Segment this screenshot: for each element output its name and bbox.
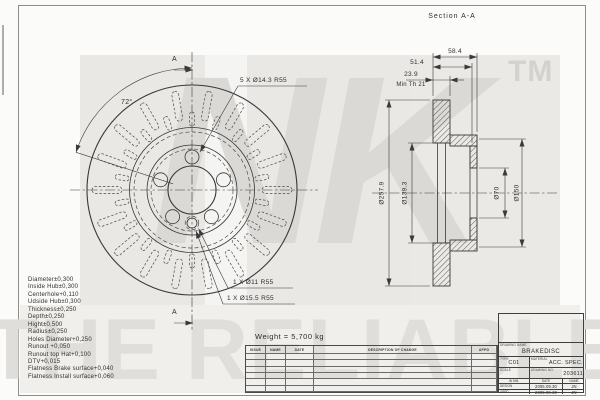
title-block-name-row: DRAWING NAME BRAKEDISC [499,342,583,356]
hole-2-label: 1 X Ø15.5 R55 [227,295,274,302]
drawing-no-value: 203611 [563,371,583,377]
drawing-name-label: DRAWING NAME [500,343,527,347]
type-value: C01 [499,360,529,366]
section-marker-a-top: A [172,56,177,63]
type-cell: TYPE C01 [499,357,530,367]
tolerance-line: Depth±0,250 [28,314,114,321]
tolerance-line: Thickness±0,250 [28,307,114,314]
revision-table: ISSUE NAME DATE DESCRIPTION OF CHANGE AP… [245,345,498,393]
dim-vent-diameter-label: Ø139.3 [402,181,409,204]
scale-cell: SCALE [499,368,530,378]
dim-hub-diameter-label: Ø150 [514,184,521,201]
title-block: DRAWING NAME BRAKEDISC TYPE C01 MATERIAL… [498,313,584,393]
dim-min-thickness-label: Min Th 21 [396,82,425,88]
dim-inner-width-label: 51.4 [410,59,424,66]
revision-header-name: NAME [266,346,286,354]
tolerance-line: Udside Hub±0,300 [28,299,114,306]
tolerance-line: Centerhole+0,110 [28,292,114,299]
tolerance-line: Runout top Hat+0,100 [28,352,114,359]
drawing-name-value: BRAKEDISC [499,349,583,355]
technical-drawing-sheet: NK TM THE RELIABLE PART [0,0,600,400]
revision-header-issue: ISSUE [246,346,266,354]
tolerance-line: Radius±0,250 [28,329,114,336]
tolerance-line: Diameter±0,300 [28,277,114,284]
bolt-pattern-label: 5 X Ø14.3 R55 [240,77,287,84]
hole-1-label: 1 X Ø11 R55 [233,279,273,286]
title-block-appd-row: APPD. 2005.09.30 JN [499,389,583,395]
title-block-scale-number-row: SCALE DRAWING NO. 203611 [499,367,583,378]
scale-label: SCALE [500,368,511,372]
revision-empty-cell [266,386,286,392]
revision-header-appd: APPD [472,346,497,354]
tolerance-line: Runout +0,050 [28,344,114,351]
tolerance-line: Holes Diameter+0,250 [28,337,114,344]
tolerance-list: Diameter±0,300 Inside Hub±0,300 Centerho… [28,277,114,381]
appd-label-cell: APPD. [499,390,530,395]
dim-thickness-label: 23.9 [404,71,418,78]
revision-header-description: DESCRIPTION OF CHANGE [314,346,472,354]
revision-empty-cell [314,386,472,392]
appd-name-cell: JN [563,390,585,395]
material-cell: MATERIAL ACC. SPEC. [530,357,585,367]
revision-header-date: DATE [286,346,314,354]
dim-total-width-label: 58.4 [448,48,462,55]
appd-date-cell: 2005.09.30 [530,390,563,395]
section-view-title: Section A-A [428,13,476,20]
revision-empty-cell [286,386,314,392]
angle-72-label: 72° [121,99,133,106]
title-block-type-material-row: TYPE C01 MATERIAL ACC. SPEC. [499,356,583,367]
dim-outer-diameter-label: Ø257.9 [379,181,386,204]
revision-empty-cell [246,386,266,392]
drawing-no-label: DRAWING NO. [531,368,554,372]
revision-empty-cell [472,386,497,392]
drawing-no-cell: DRAWING NO. 203611 [530,368,585,378]
tolerance-line: Flatness Install surface+0,060 [28,374,114,381]
tolerance-line: Flatness Brake surface+0,040 [28,366,114,373]
material-value: ACC. SPEC. [549,360,583,366]
weight-note: Weight = 5,700 kg [255,332,324,341]
dim-bore-diameter-label: Ø70 [494,186,501,199]
material-label: MATERIAL [531,357,548,361]
tolerance-line: DTV+0,015 [28,359,114,366]
section-marker-a-bottom: A [172,309,177,316]
scan-edge-artifact [2,25,4,95]
tolerance-line: Inside Hub±0,300 [28,284,114,291]
tolerance-line: Hight±0,500 [28,322,114,329]
